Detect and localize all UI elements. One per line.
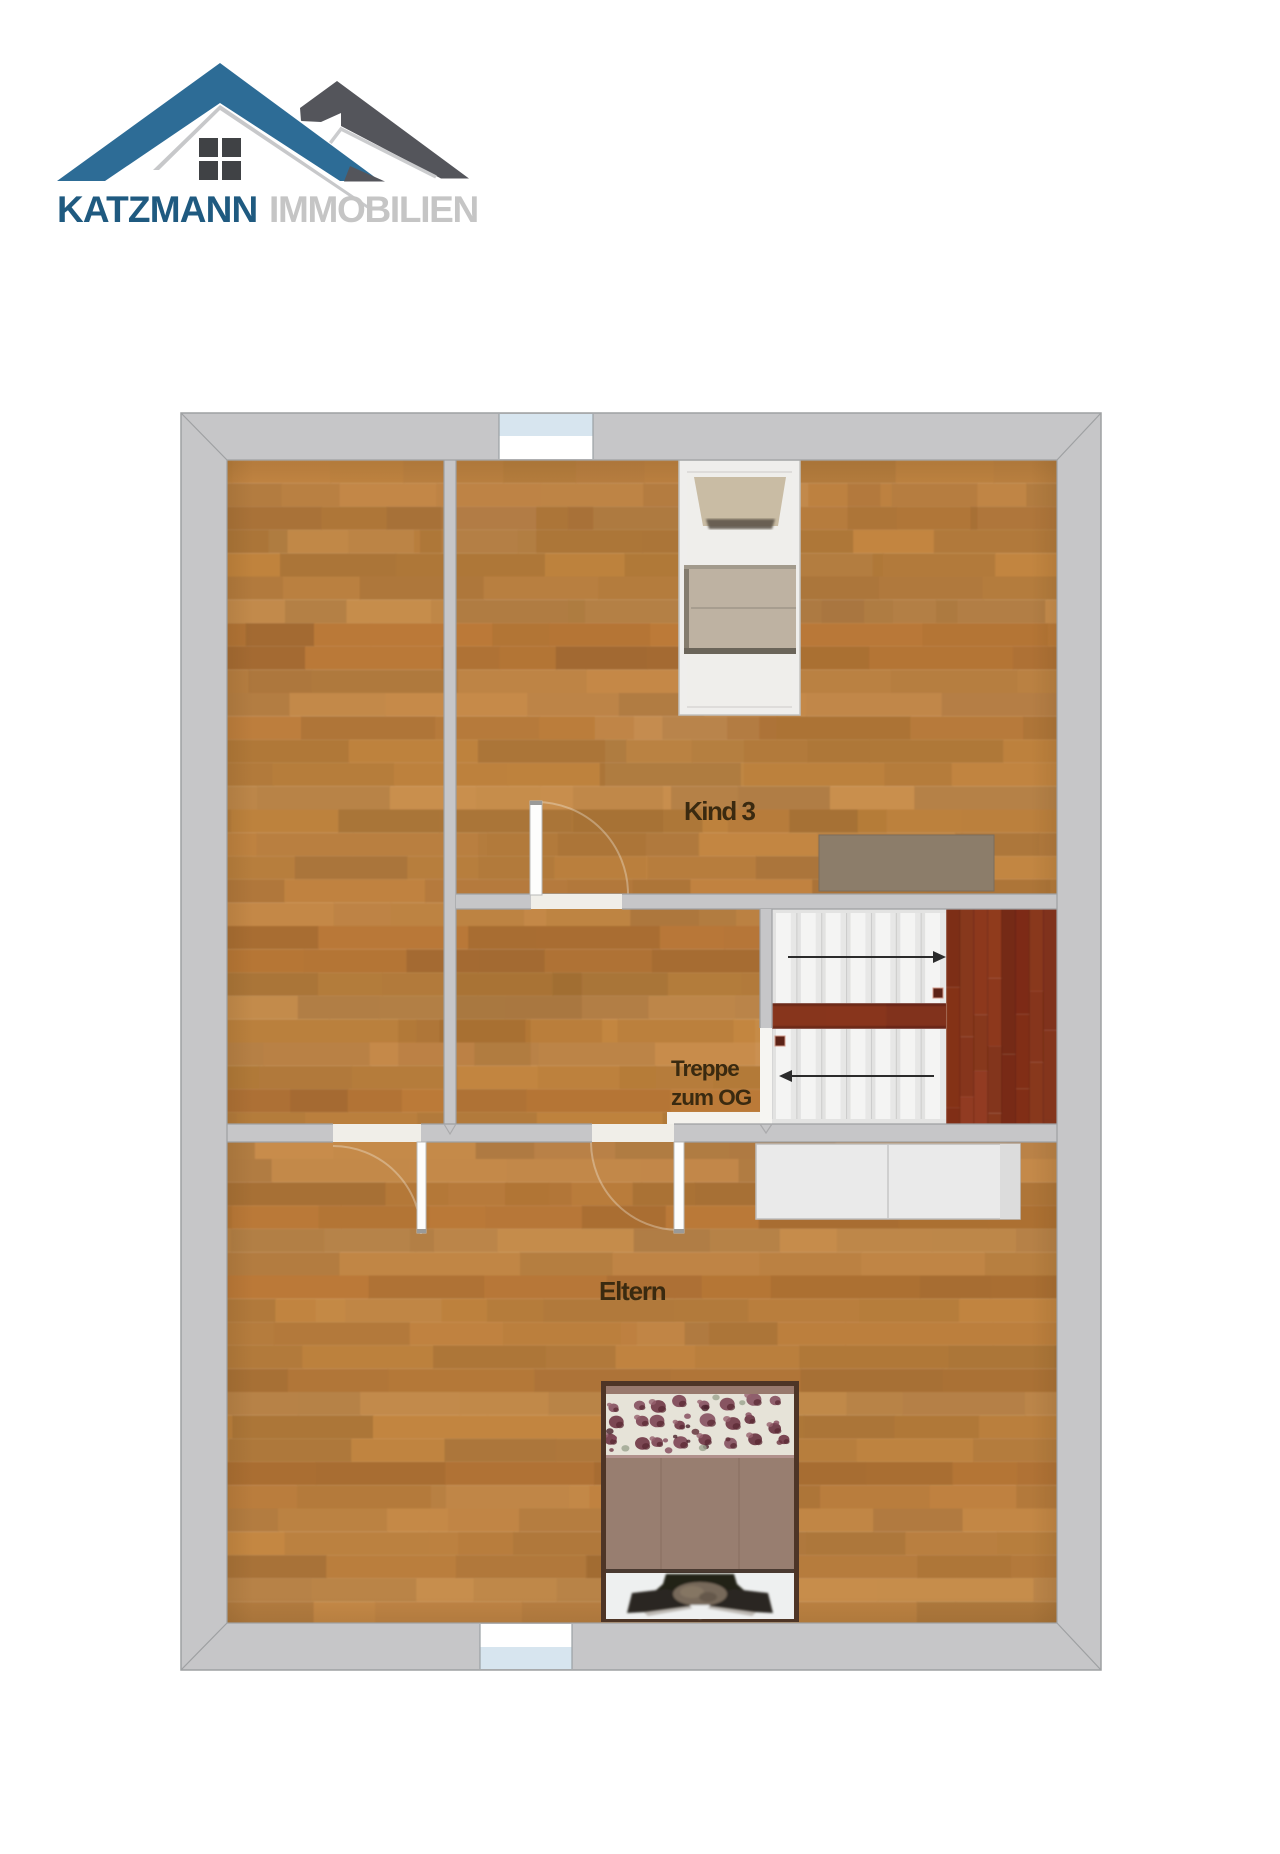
svg-text:Kind 3: Kind 3 (684, 796, 755, 826)
svg-text:zum OG: zum OG (671, 1085, 752, 1110)
svg-text:IMMOBILIEN: IMMOBILIEN (269, 189, 478, 230)
svg-text:KATZMANN: KATZMANN (57, 189, 257, 230)
svg-text:Eltern: Eltern (599, 1276, 666, 1306)
svg-text:Treppe: Treppe (671, 1056, 739, 1081)
